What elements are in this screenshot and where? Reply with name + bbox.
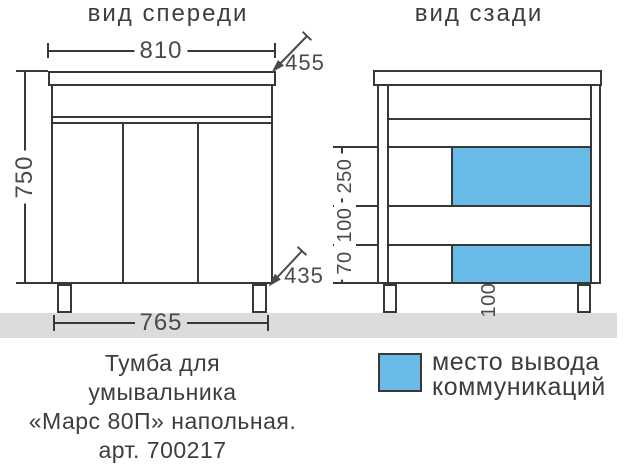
back-leg-right (577, 284, 591, 313)
dim-455-end-tick (303, 32, 312, 40)
caption-line3: «Марс 80П» напольная. (5, 407, 320, 436)
caption-line2: умывальника (5, 378, 320, 407)
product-caption: Тумба для умывальника «Марс 80П» напольн… (5, 349, 320, 465)
front-rail-line-upper (53, 116, 271, 118)
back-dim-ext-4 (333, 282, 379, 284)
dim-250-label: 250 (334, 154, 356, 199)
dim-765-line-right (187, 322, 269, 324)
dim-810-tick-right (274, 43, 276, 58)
dim-765-tick-right (267, 315, 269, 331)
front-cabinet-body (51, 84, 273, 284)
floor-strip (0, 313, 617, 338)
communication-zone-upper (451, 146, 592, 207)
dim-750-ext-bottom (16, 282, 52, 284)
back-shelf-line-3 (389, 205, 590, 207)
communication-zone-swatch-icon (378, 353, 422, 392)
front-rail-line-lower (53, 122, 271, 124)
front-leg-right (252, 284, 267, 313)
dim-100-label: 100 (334, 203, 356, 248)
legend-label: место вывода коммуникаций (432, 350, 606, 400)
front-door-divider-left (122, 124, 124, 282)
dim-810-tick-left (47, 43, 49, 58)
dim-750-ext-top (16, 70, 48, 72)
dim-435-end-tick (298, 247, 307, 255)
back-dim-ext-1 (333, 146, 379, 148)
dim-765-label: 765 (139, 311, 182, 335)
dim-455-arrowhead (274, 62, 282, 70)
dim-750-label: 750 (12, 150, 38, 203)
back-leg-left (383, 284, 397, 313)
communication-zone-lower (451, 244, 592, 284)
back-shelf-line-1 (389, 118, 590, 120)
dim-70-label: 70 (334, 246, 356, 279)
dim-810-label: 810 (134, 38, 187, 64)
front-leg-left (57, 284, 72, 313)
dim-435-label: 435 (284, 265, 324, 287)
dim-leg-height-label: 100 (479, 283, 499, 318)
technical-drawing: вид спереди 810 750 765 455 435 вид сзад (0, 0, 626, 474)
dim-765-line-left (53, 322, 135, 324)
front-view-title: вид спереди (48, 0, 288, 28)
dim-765-tick-left (53, 315, 55, 331)
caption-line4: арт. 700217 (5, 436, 320, 465)
dim-455-label: 455 (285, 52, 325, 74)
legend-label-line1: место вывода (432, 350, 606, 375)
back-view-title: вид сзади (369, 0, 589, 28)
legend-label-line2: коммуникаций (432, 375, 606, 400)
caption-line1: Тумба для (5, 349, 320, 378)
front-door-divider-right (197, 124, 199, 282)
back-side-wall-left (387, 86, 389, 282)
